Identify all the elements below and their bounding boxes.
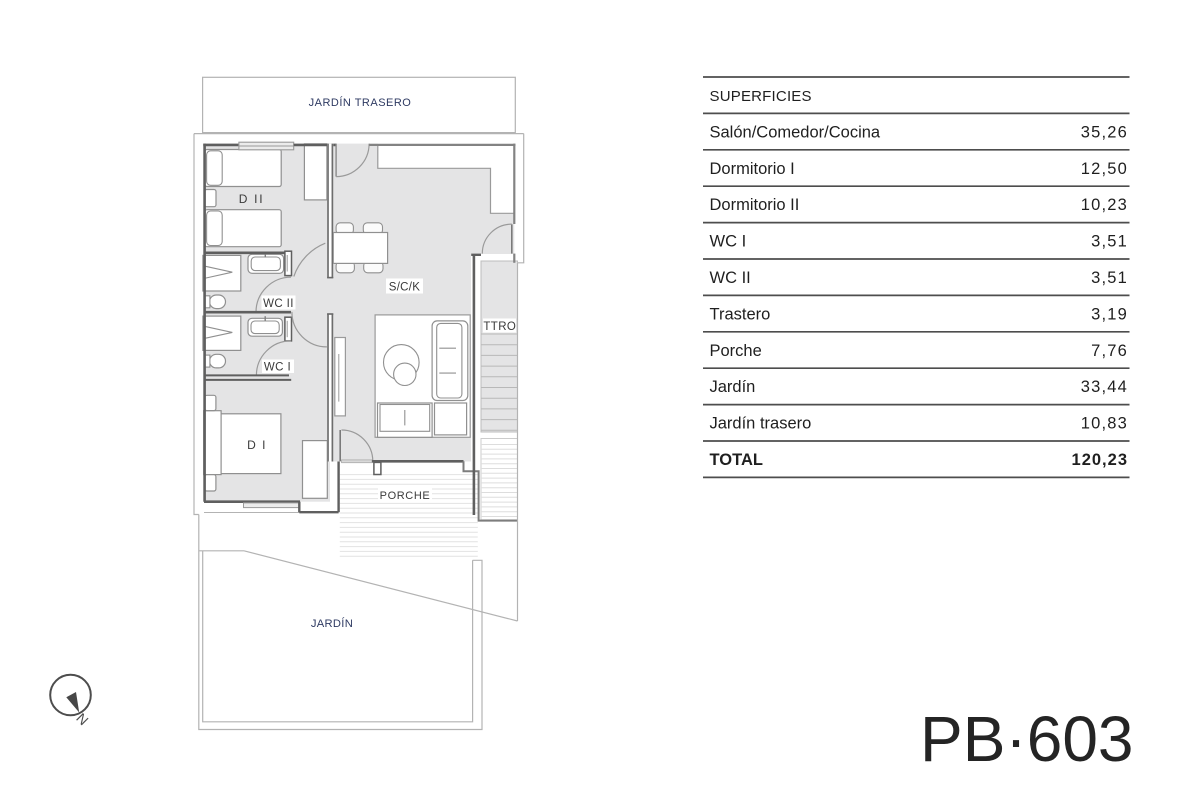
svg-text:Porche: Porche: [710, 342, 762, 360]
svg-text:JARDÍN TRASERO: JARDÍN TRASERO: [309, 96, 412, 109]
svg-text:S/C/K: S/C/K: [389, 282, 421, 294]
svg-text:Jardín trasero: Jardín trasero: [710, 415, 812, 433]
svg-text:12,50: 12,50: [1081, 160, 1128, 178]
svg-text:3,51: 3,51: [1091, 269, 1128, 287]
svg-text:SUPERFICIES: SUPERFICIES: [710, 88, 812, 105]
svg-text:Jardín: Jardín: [710, 378, 756, 396]
svg-text:PB·603: PB·603: [920, 703, 1133, 775]
svg-text:PORCHE: PORCHE: [380, 490, 431, 502]
svg-text:D I: D I: [247, 438, 267, 452]
svg-text:3,19: 3,19: [1091, 305, 1128, 323]
svg-text:35,26: 35,26: [1081, 123, 1128, 141]
svg-text:JARDÍN: JARDÍN: [311, 617, 353, 630]
svg-text:10,83: 10,83: [1081, 415, 1128, 433]
svg-text:WC II: WC II: [710, 269, 751, 287]
svg-text:D II: D II: [239, 192, 264, 206]
svg-text:TTRO: TTRO: [483, 321, 516, 333]
svg-text:10,23: 10,23: [1081, 196, 1128, 214]
svg-text:33,44: 33,44: [1081, 378, 1128, 396]
svg-text:Dormitorio I: Dormitorio I: [710, 160, 795, 178]
svg-text:Dormitorio II: Dormitorio II: [710, 196, 800, 214]
svg-text:WC I: WC I: [264, 361, 291, 373]
svg-text:WC I: WC I: [710, 233, 747, 251]
svg-text:3,51: 3,51: [1091, 233, 1128, 251]
svg-text:TOTAL: TOTAL: [710, 451, 763, 469]
svg-text:7,76: 7,76: [1091, 342, 1128, 360]
svg-text:120,23: 120,23: [1072, 451, 1128, 469]
svg-text:Salón/Comedor/Cocina: Salón/Comedor/Cocina: [710, 123, 881, 141]
svg-text:WC II: WC II: [263, 298, 294, 310]
svg-text:Trastero: Trastero: [710, 305, 771, 323]
